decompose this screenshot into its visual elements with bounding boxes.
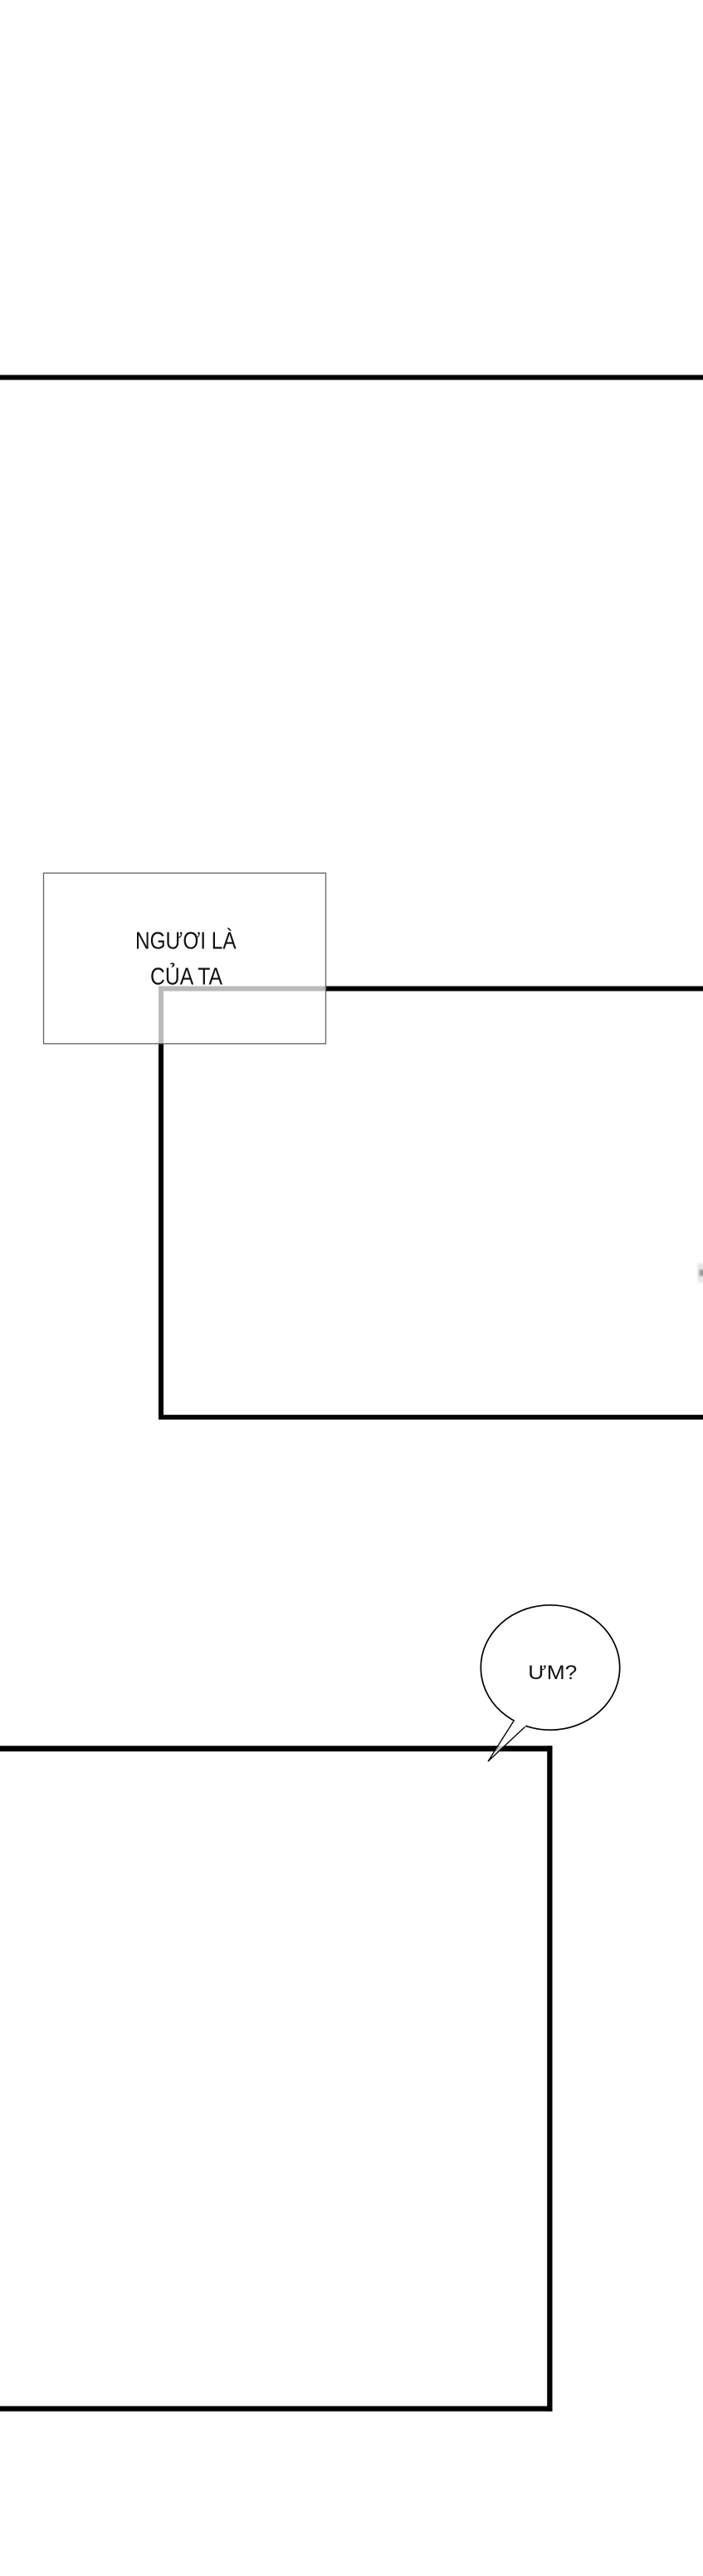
svg-text:CỦA TA: CỦA TA — [150, 962, 222, 990]
svg-text:NGƯƠI LÀ: NGƯƠI LÀ — [135, 928, 237, 954]
svg-text:ƯM?: ƯM? — [528, 1662, 577, 1684]
